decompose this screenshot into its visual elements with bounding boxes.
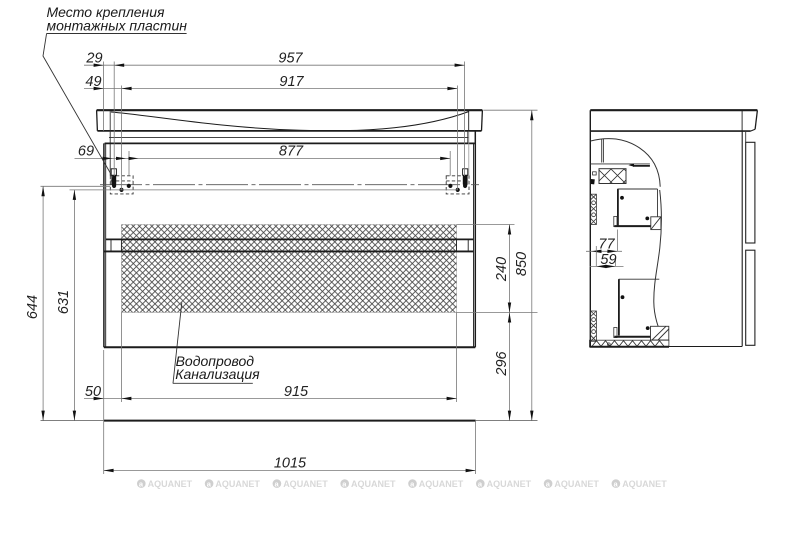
svg-text:1015: 1015 [274, 455, 307, 471]
svg-text:AQUANET: AQUANET [419, 479, 464, 489]
svg-text:850: 850 [514, 252, 530, 276]
svg-text:296: 296 [494, 350, 510, 376]
svg-text:монтажных пластин: монтажных пластин [47, 18, 188, 34]
svg-text:49: 49 [85, 74, 101, 90]
svg-text:240: 240 [494, 257, 510, 282]
svg-text:AQUANET: AQUANET [487, 479, 532, 489]
svg-text:50: 50 [85, 384, 101, 400]
svg-text:631: 631 [56, 290, 72, 314]
svg-text:957: 957 [278, 51, 303, 67]
svg-text:69: 69 [78, 144, 94, 160]
svg-text:917: 917 [279, 74, 304, 90]
svg-text:AQUANET: AQUANET [283, 479, 328, 489]
svg-text:AQUANET: AQUANET [215, 479, 260, 489]
svg-text:AQUANET: AQUANET [554, 479, 599, 489]
svg-text:AQUANET: AQUANET [351, 479, 396, 489]
svg-text:AQUANET: AQUANET [148, 479, 193, 489]
svg-text:877: 877 [279, 144, 304, 160]
svg-text:644: 644 [25, 295, 41, 319]
svg-text:AQUANET: AQUANET [622, 479, 667, 489]
svg-text:Канализация: Канализация [175, 366, 260, 382]
svg-text:59: 59 [600, 252, 616, 268]
svg-text:77: 77 [598, 237, 615, 253]
svg-text:915: 915 [284, 384, 309, 400]
svg-text:29: 29 [85, 51, 102, 67]
